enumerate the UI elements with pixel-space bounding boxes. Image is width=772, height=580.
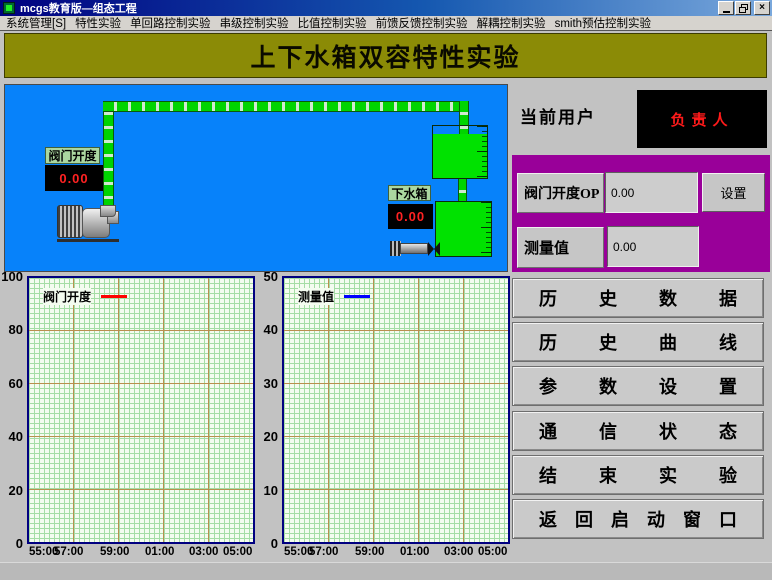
menu-bar: 系统管理[S] 特性实验 单回路控制实验 串级控制实验 比值控制实验 前馈反馈控…: [0, 16, 772, 31]
menu-item-cascade[interactable]: 串级控制实验: [220, 15, 289, 31]
y-tick: 50: [264, 270, 278, 284]
menu-item-characteristic[interactable]: 特性实验: [75, 15, 121, 31]
close-button[interactable]: ×: [754, 1, 770, 15]
valve-opening-tag: 阀门开度: [45, 147, 100, 164]
valve-opening-display: 0.00: [45, 165, 103, 191]
y-tick: 0: [271, 537, 278, 551]
communication-status-button[interactable]: 通信状态: [512, 411, 764, 451]
pump-base: [57, 239, 119, 242]
x-tick: 01:00: [145, 546, 174, 558]
menu-item-system[interactable]: 系统管理[S]: [6, 15, 66, 31]
current-user-value: 负责人: [670, 109, 733, 130]
measured-value-input[interactable]: [607, 226, 699, 267]
legend-label: 阀门开度: [43, 288, 91, 305]
x-tick: 59:00: [100, 546, 129, 558]
drain-valve-icon: [434, 242, 440, 256]
lower-tank-display: 0.00: [388, 204, 433, 229]
restore-icon: [739, 4, 748, 13]
chart2-x-axis: 55:00 57:00 59:00 01:00 03:00 05:00: [282, 546, 512, 561]
x-tick: 57:00: [54, 546, 83, 558]
y-tick: 80: [9, 323, 23, 337]
minimize-button[interactable]: [718, 1, 734, 15]
upper-tank: [432, 125, 488, 179]
end-experiment-button[interactable]: 结束实验: [512, 455, 764, 495]
x-tick: 57:00: [309, 546, 338, 558]
menu-item-smith[interactable]: smith预估控制实验: [555, 15, 651, 31]
x-tick: 05:00: [478, 546, 507, 558]
y-tick: 0: [16, 537, 23, 551]
y-tick: 100: [1, 270, 23, 284]
drain-valve-assembly: [390, 239, 438, 259]
y-tick: 40: [9, 430, 23, 444]
valve-opening-trend-chart: 阀门开度 55:00 57:00 59:00 01:00 03:00 05:00: [27, 270, 257, 566]
control-panel: 阀门开度OP 设置 测量值: [512, 155, 770, 272]
pipe-between-tanks: [458, 179, 467, 203]
pipe-top: [103, 101, 469, 112]
lower-tank-scale: [481, 202, 491, 256]
legend-line-red: [101, 295, 127, 298]
measured-value-trend-chart: 测量值 55:00 57:00 59:00 01:00 03:00 05:00: [282, 270, 512, 566]
x-tick: 59:00: [355, 546, 384, 558]
x-tick: 05:00: [223, 546, 252, 558]
history-data-button[interactable]: 历史数据: [512, 278, 764, 318]
parameter-settings-button[interactable]: 参数设置: [512, 366, 764, 406]
current-user-display: 负责人: [637, 90, 767, 148]
drain-cylinder-icon: [400, 243, 428, 254]
lower-tank: [435, 201, 492, 257]
x-tick: 03:00: [444, 546, 473, 558]
valve-op-input[interactable]: [605, 172, 698, 213]
menu-item-decoupling[interactable]: 解耦控制实验: [477, 15, 546, 31]
return-startup-window-button[interactable]: 返回启动窗口: [512, 499, 764, 539]
legend-label: 测量值: [298, 288, 334, 305]
measured-value-label: 测量值: [517, 227, 604, 268]
process-diagram: 阀门开度 0.00 下水箱 0.00: [4, 84, 508, 272]
pipe-riser: [103, 101, 114, 211]
close-icon: ×: [759, 3, 765, 13]
title-bar: mcgs教育版—组态工程 ×: [0, 0, 772, 16]
menu-item-feedforward[interactable]: 前馈反馈控制实验: [376, 15, 468, 31]
y-tick: 20: [9, 484, 23, 498]
chart1-plot-area: 阀门开度: [27, 276, 255, 544]
restore-button[interactable]: [735, 1, 751, 15]
menu-item-single-loop[interactable]: 单回路控制实验: [130, 15, 211, 31]
window-controls: ×: [718, 1, 770, 15]
menu-item-ratio[interactable]: 比值控制实验: [298, 15, 367, 31]
y-tick: 10: [264, 484, 278, 498]
app-icon: [3, 2, 15, 14]
history-curve-button[interactable]: 历史曲线: [512, 322, 764, 362]
chart1-legend: 阀门开度: [43, 288, 127, 305]
x-tick: 01:00: [400, 546, 429, 558]
set-button[interactable]: 设置: [702, 173, 765, 212]
minimize-icon: [723, 11, 730, 13]
y-tick: 60: [9, 377, 23, 391]
bottom-strip: [0, 562, 772, 580]
current-user-label: 当前用户: [520, 101, 632, 129]
lower-tank-tag: 下水箱: [388, 185, 431, 201]
upper-tank-scale: [477, 126, 487, 178]
chart1-x-axis: 55:00 57:00 59:00 01:00 03:00 05:00: [27, 546, 257, 561]
chart1-y-axis: 100 80 60 40 20 0: [0, 270, 25, 551]
experiment-title-banner: 上下水箱双容特性实验: [4, 33, 767, 78]
chart2-plot-area: 测量值: [282, 276, 510, 544]
y-tick: 30: [264, 377, 278, 391]
chart2-legend: 测量值: [298, 288, 370, 305]
valve-op-label: 阀门开度OP: [517, 173, 604, 213]
y-tick: 20: [264, 430, 278, 444]
page-title: 上下水箱双容特性实验: [250, 38, 520, 74]
chart2-y-axis: 50 40 30 20 10 0: [255, 270, 280, 551]
legend-line-blue: [344, 295, 370, 298]
window-title: mcgs教育版—组态工程: [20, 0, 137, 16]
pipe-elbow: [100, 205, 116, 217]
mcgs-window: mcgs教育版—组态工程 × 系统管理[S] 特性实验 单回路控制实验 串级控制…: [0, 0, 772, 580]
pump-motor-icon: [57, 205, 83, 238]
y-tick: 40: [264, 323, 278, 337]
x-tick: 03:00: [189, 546, 218, 558]
